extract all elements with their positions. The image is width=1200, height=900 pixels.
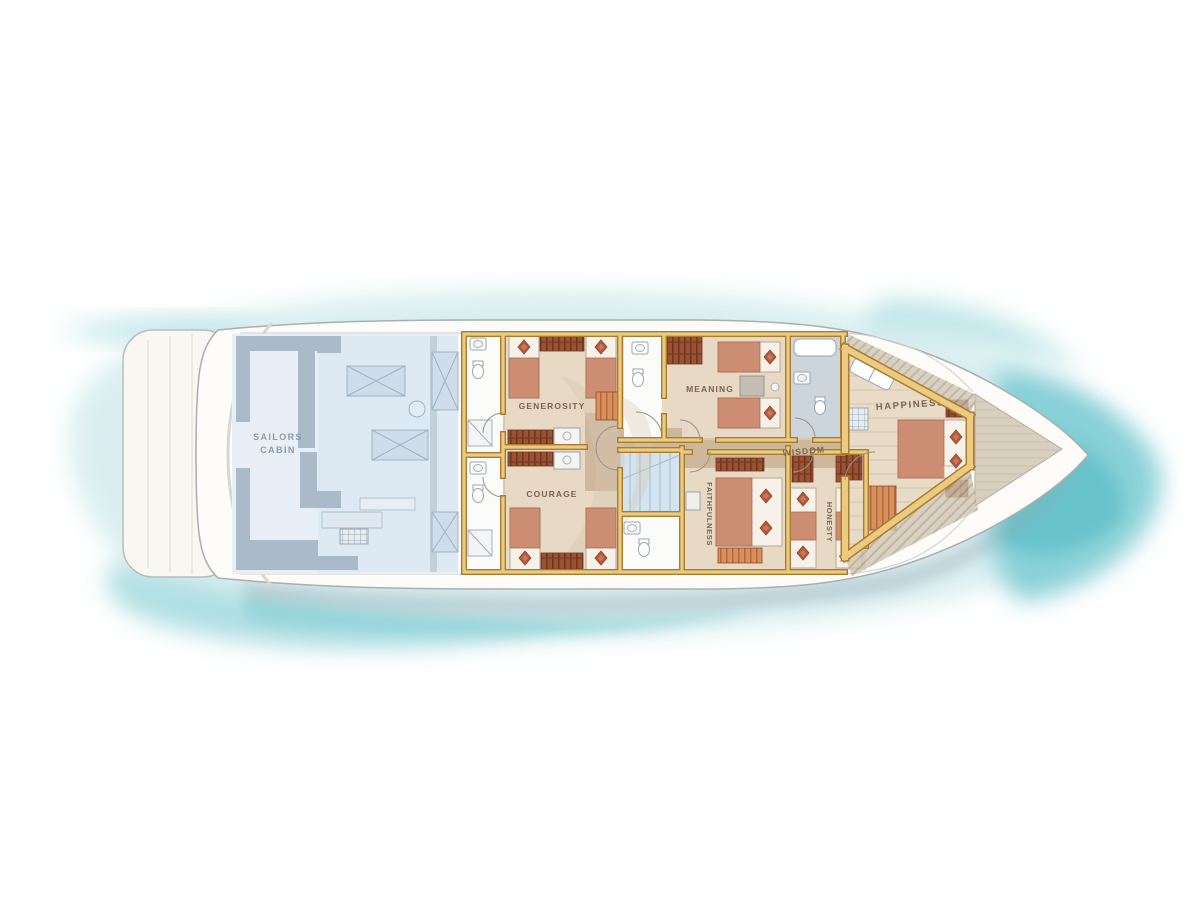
nightstand bbox=[740, 376, 764, 396]
closet bbox=[666, 336, 702, 364]
meaning-label: MEANING bbox=[686, 384, 734, 394]
cabinet bbox=[508, 430, 553, 444]
deck-plan-canvas: SAILORS CABIN bbox=[0, 0, 1200, 900]
honesty-label: HONESTY bbox=[825, 502, 834, 542]
vanity-desk bbox=[848, 408, 868, 430]
faithfulness-label: FAITHFULNESS bbox=[705, 482, 714, 546]
bed bbox=[586, 336, 616, 398]
bed bbox=[790, 488, 816, 568]
bathtub bbox=[794, 339, 836, 356]
nightstand bbox=[792, 456, 813, 482]
crew-grid-unit bbox=[340, 529, 368, 544]
courage-label: COURAGE bbox=[526, 489, 577, 499]
generosity-label: GENEROSITY bbox=[519, 401, 586, 411]
cabinet bbox=[508, 452, 553, 466]
sailors-cabin-area: SAILORS CABIN bbox=[232, 334, 458, 574]
floor-plan-page: SAILORS CABIN bbox=[0, 0, 1200, 900]
bed bbox=[716, 478, 782, 546]
shelf bbox=[686, 492, 700, 510]
sailors-cabin-label-line2: CABIN bbox=[260, 445, 296, 455]
bed bbox=[510, 508, 540, 570]
headboard-cabinet bbox=[716, 458, 764, 471]
dresser bbox=[541, 553, 583, 569]
wardrobe bbox=[596, 392, 618, 420]
bench bbox=[718, 548, 762, 563]
bed bbox=[586, 508, 616, 570]
sailors-cabin-label-line1: SAILORS bbox=[253, 432, 303, 442]
bed bbox=[509, 336, 539, 398]
bed bbox=[718, 398, 780, 428]
bed bbox=[718, 342, 780, 372]
